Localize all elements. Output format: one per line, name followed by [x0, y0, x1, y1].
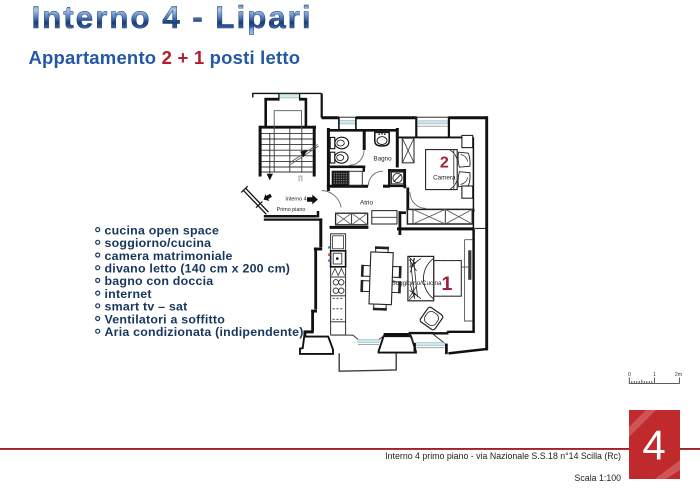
svg-text:2: 2: [440, 155, 449, 172]
svg-text:1: 1: [441, 273, 452, 295]
svg-text:Primo piano: Primo piano: [277, 207, 306, 213]
svg-text:Aria condizionata (indipendent: Aria condizionata (indipendente): [105, 325, 304, 339]
svg-text:4: 4: [642, 422, 665, 469]
svg-text:2m: 2m: [675, 372, 682, 378]
svg-text:Scala 1:100: Scala 1:100: [575, 473, 622, 483]
svg-text:Atrio: Atrio: [360, 200, 373, 207]
svg-text:|ʼ|: |ʼ|: [298, 176, 303, 182]
svg-text:Appartamento 2 + 1 posti letto: Appartamento 2 + 1 posti letto: [29, 47, 301, 68]
svg-text:1: 1: [653, 372, 656, 378]
svg-text:Interno 4 primo piano - via N: Interno 4 primo piano - via Nazionale S.…: [385, 451, 621, 461]
svg-text:Bagno: Bagno: [373, 155, 392, 162]
svg-text:0: 0: [628, 372, 631, 378]
svg-text:Camera: Camera: [433, 174, 456, 181]
svg-text:Soggiorno/Cucina: Soggiorno/Cucina: [391, 280, 442, 287]
svg-text:Interno 4: Interno 4: [285, 197, 306, 203]
svg-text:Interno 4 - Lipari: Interno 4 - Lipari: [32, 0, 313, 35]
